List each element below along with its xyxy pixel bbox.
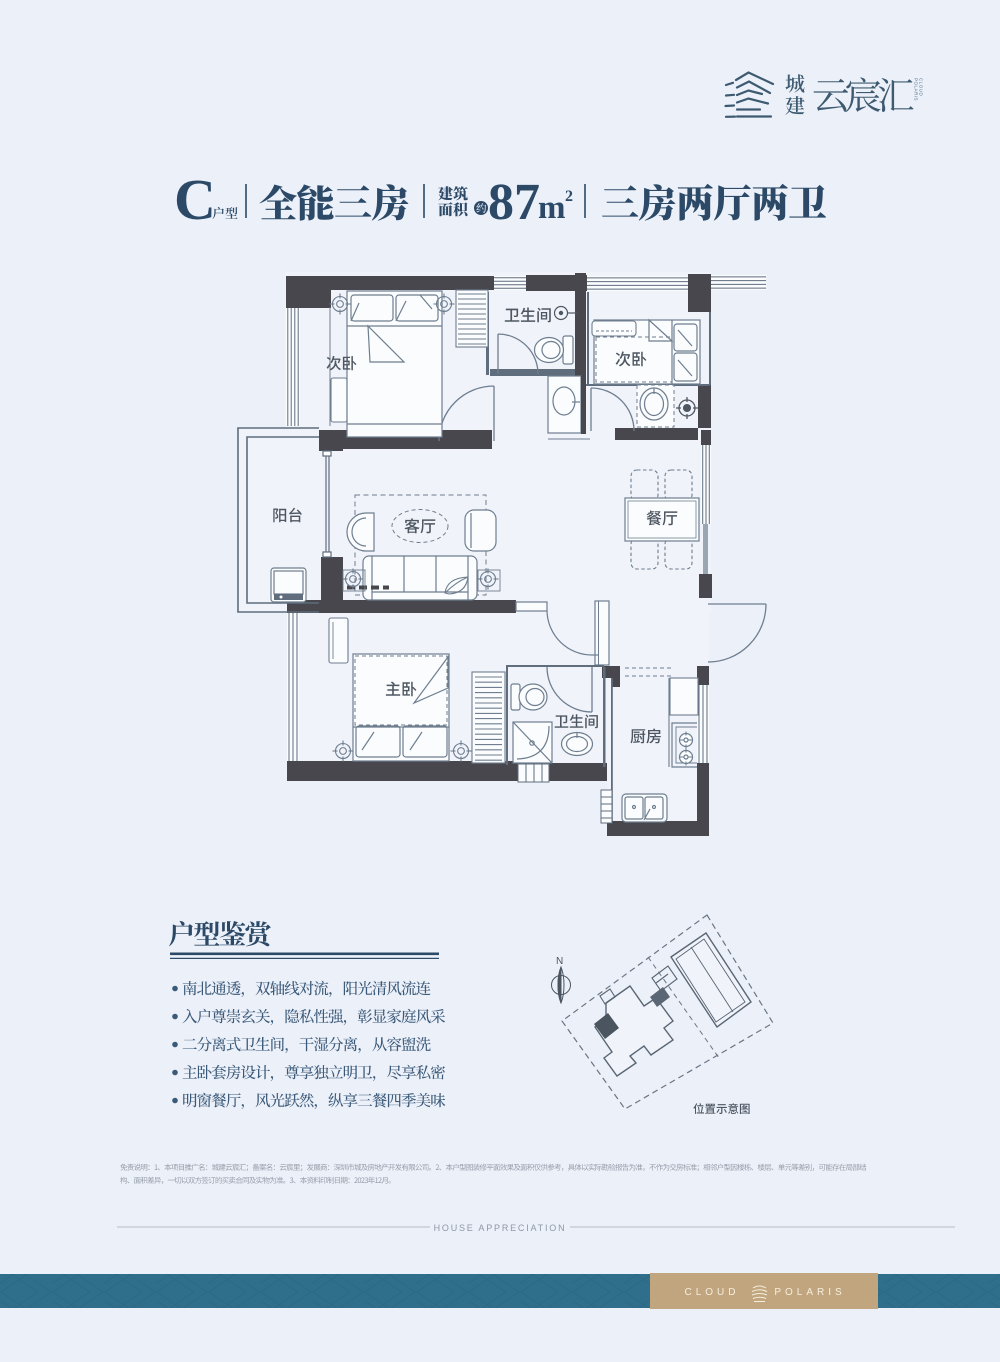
svg-text:HOUSE APPRECIATION: HOUSE APPRECIATION [434, 1223, 567, 1233]
svg-text:C: C [174, 167, 216, 232]
svg-text:87: 87 [488, 174, 540, 231]
svg-text:POLARIS: POLARIS [774, 1287, 845, 1298]
svg-text:CLOUD: CLOUD [684, 1287, 739, 1298]
svg-text:2: 2 [565, 188, 573, 205]
svg-text:CLOUD: CLOUD [919, 78, 924, 97]
svg-text:N: N [556, 956, 563, 967]
svg-text:m: m [538, 190, 566, 226]
